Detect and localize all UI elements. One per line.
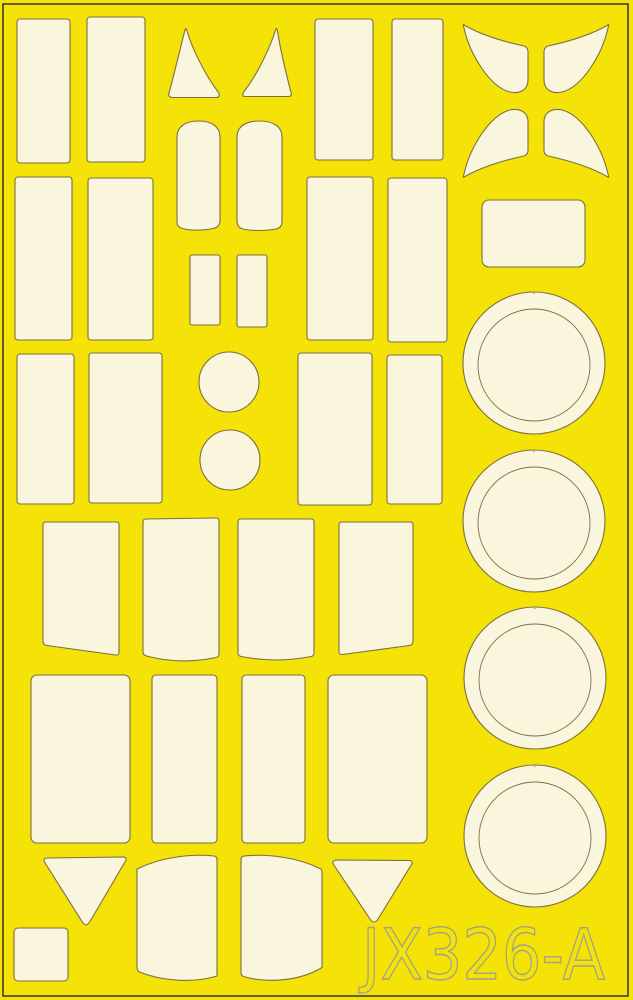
mask-rect-row1-col2 bbox=[87, 17, 145, 162]
mask-rect-row1-col3 bbox=[315, 19, 373, 160]
mask-circle-1 bbox=[199, 352, 259, 412]
mask-wheel-ring-4 bbox=[464, 765, 606, 907]
mask-rect-row3-col1 bbox=[17, 354, 74, 504]
mask-sheet-canvas: JX326-A bbox=[0, 0, 633, 1000]
mask-sheet: JX326-A bbox=[0, 0, 633, 1000]
mask-small-rect-2 bbox=[237, 255, 267, 327]
mask-arch-2 bbox=[237, 121, 282, 231]
mask-rect-row1-col4 bbox=[392, 19, 443, 160]
mask-rect-row2-col4 bbox=[388, 178, 447, 342]
mask-canopy-quad-1 bbox=[43, 522, 119, 655]
mask-small-square bbox=[14, 928, 68, 981]
mask-windscreen-side-1 bbox=[137, 855, 217, 980]
mask-rect-row1-col1 bbox=[17, 19, 70, 163]
mask-small-rect-1 bbox=[190, 255, 220, 325]
mask-wheel-ring-1 bbox=[463, 292, 605, 434]
mask-canopy-quad-3 bbox=[238, 519, 314, 660]
mask-rect-row5-col2 bbox=[152, 675, 217, 843]
mask-rect-row3-col3 bbox=[298, 353, 372, 505]
mask-rect-row3-col2 bbox=[89, 353, 162, 503]
mask-wheel-ring-2 bbox=[463, 450, 605, 592]
sheet-label: JX326-A bbox=[358, 914, 605, 996]
mask-rect-row5-col1 bbox=[31, 675, 130, 843]
mask-canopy-quad-2 bbox=[143, 518, 219, 661]
mask-rect-row5-col3 bbox=[242, 675, 305, 843]
mask-rect-row2-col2 bbox=[88, 178, 153, 340]
mask-rect-row5-col4 bbox=[328, 675, 427, 843]
mask-wide-rect bbox=[482, 200, 585, 267]
mask-circle-2 bbox=[200, 430, 260, 490]
mask-arch-1 bbox=[177, 121, 220, 230]
mask-windscreen-side-2 bbox=[241, 855, 322, 980]
mask-rect-row2-col3 bbox=[307, 177, 373, 340]
mask-rect-row3-col4 bbox=[387, 355, 442, 504]
mask-wheel-ring-3 bbox=[464, 607, 606, 749]
mask-rect-row2-col1 bbox=[15, 177, 72, 340]
mask-canopy-quad-4 bbox=[339, 522, 413, 655]
